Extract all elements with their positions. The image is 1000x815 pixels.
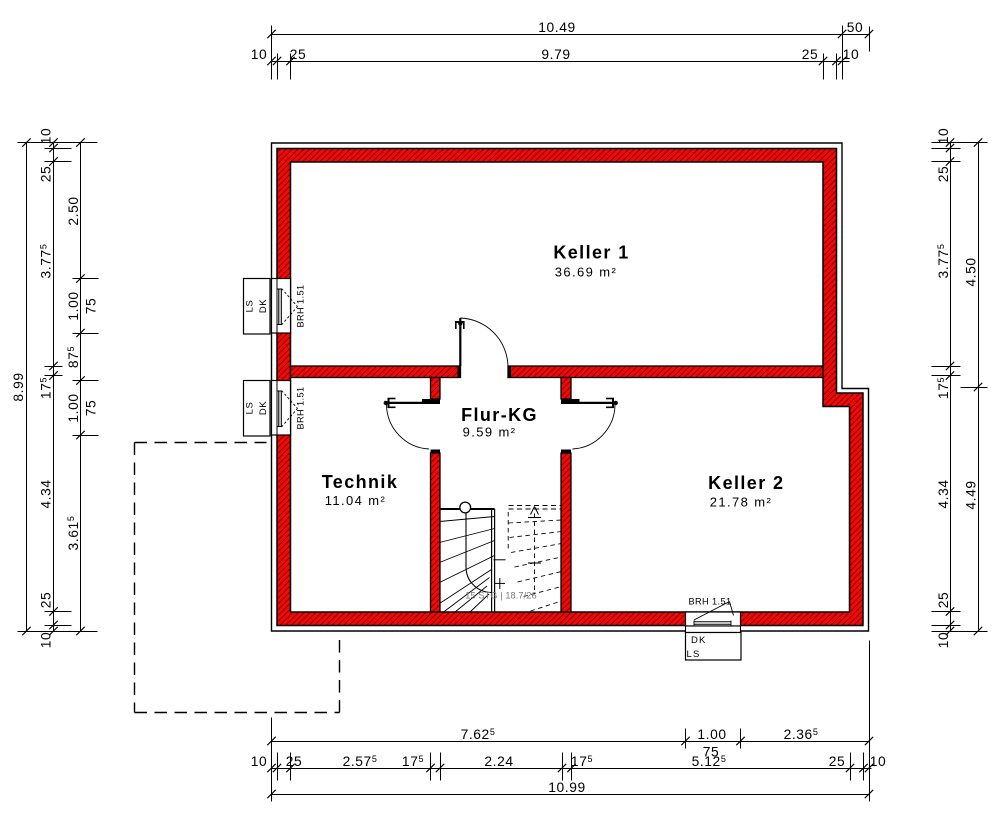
svg-text:10: 10 (870, 754, 887, 769)
svg-text:BRH 1.51: BRH 1.51 (296, 386, 306, 429)
svg-text:Flur-KG: Flur-KG (461, 405, 538, 425)
svg-text:Technik: Technik (322, 472, 398, 492)
svg-text:25: 25 (39, 166, 54, 183)
svg-text:11.04 m²: 11.04 m² (325, 493, 387, 508)
svg-text:10: 10 (251, 754, 268, 769)
svg-text:1.00: 1.00 (66, 291, 81, 320)
svg-text:DK: DK (258, 299, 269, 313)
svg-text:8.99: 8.99 (11, 372, 26, 401)
svg-text:21.78 m²: 21.78 m² (710, 495, 773, 510)
svg-text:4.50: 4.50 (964, 257, 979, 286)
svg-text:4.34: 4.34 (936, 479, 951, 508)
svg-text:10: 10 (936, 632, 951, 649)
svg-text:10: 10 (39, 128, 54, 145)
svg-text:25: 25 (936, 592, 951, 609)
svg-text:BRH 1.51: BRH 1.51 (296, 284, 306, 327)
svg-text:LS: LS (687, 649, 701, 660)
svg-text:Keller 1: Keller 1 (553, 243, 629, 263)
svg-text:9.59 m²: 9.59 m² (463, 425, 517, 440)
svg-text:10: 10 (251, 47, 268, 62)
svg-text:25: 25 (39, 592, 54, 609)
svg-text:25: 25 (829, 754, 846, 769)
svg-text:10: 10 (936, 128, 951, 145)
svg-text:9.79: 9.79 (541, 47, 570, 62)
svg-text:2.50: 2.50 (66, 196, 81, 225)
svg-text:BRH 1.51: BRH 1.51 (688, 597, 731, 607)
svg-text:25: 25 (802, 47, 819, 62)
svg-text:10.49: 10.49 (538, 20, 576, 35)
svg-text:50: 50 (847, 20, 864, 35)
svg-text:1.00: 1.00 (697, 727, 726, 742)
svg-text:4.49: 4.49 (964, 480, 979, 509)
svg-text:10: 10 (843, 47, 860, 62)
svg-text:25: 25 (936, 166, 951, 183)
svg-text:LS: LS (245, 300, 256, 313)
svg-text:75: 75 (84, 298, 99, 315)
svg-text:4.34: 4.34 (39, 479, 54, 508)
svg-text:25: 25 (290, 47, 307, 62)
svg-text:10: 10 (39, 632, 54, 649)
svg-text:10.99: 10.99 (548, 780, 586, 795)
svg-text:DK: DK (258, 401, 269, 415)
svg-text:DK: DK (691, 635, 707, 646)
svg-text:2.24: 2.24 (484, 754, 513, 769)
svg-text:LS: LS (245, 402, 256, 415)
svg-text:1.00: 1.00 (66, 393, 81, 422)
svg-text:36.69 m²: 36.69 m² (555, 265, 618, 280)
svg-text:25: 25 (286, 754, 303, 769)
svg-text:75: 75 (84, 400, 99, 417)
svg-text:15 STG | 18.7/26: 15 STG | 18.7/26 (465, 591, 536, 601)
svg-text:Keller 2: Keller 2 (708, 473, 784, 493)
